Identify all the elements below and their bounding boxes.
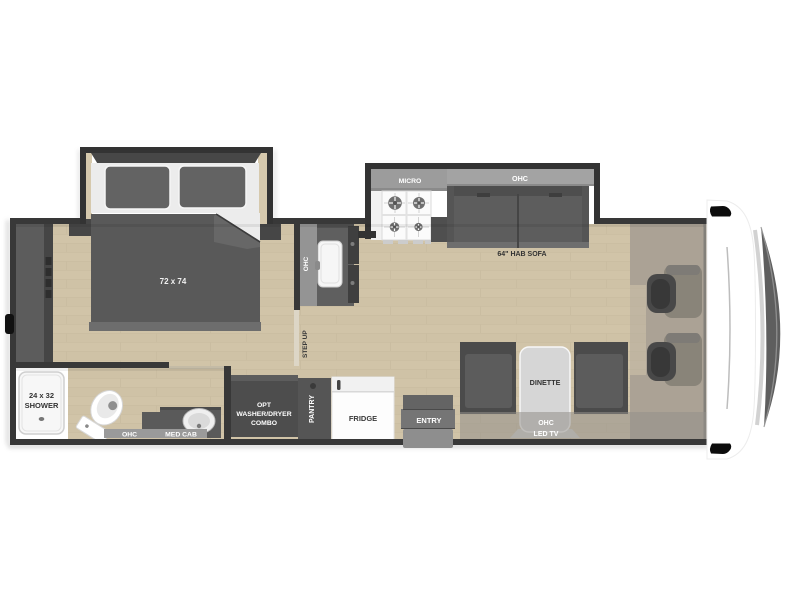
svg-text:MED CAB: MED CAB — [165, 432, 197, 439]
svg-text:ENTRY: ENTRY — [416, 416, 441, 425]
svg-text:MICRO: MICRO — [399, 178, 422, 185]
svg-text:STEP UP: STEP UP — [302, 330, 309, 358]
svg-text:OHC: OHC — [122, 432, 137, 439]
svg-text:DINETTE: DINETTE — [530, 378, 561, 387]
svg-text:24 x 32: 24 x 32 — [29, 391, 54, 400]
svg-text:SHOWER: SHOWER — [25, 401, 59, 410]
svg-text:WASHER/DRYER: WASHER/DRYER — [236, 411, 291, 418]
svg-text:LED TV: LED TV — [534, 431, 559, 438]
svg-text:64" HAB SOFA: 64" HAB SOFA — [497, 251, 546, 258]
svg-text:72 x 74: 72 x 74 — [160, 277, 187, 286]
svg-text:COMBO: COMBO — [251, 420, 277, 427]
svg-text:FRIDGE: FRIDGE — [349, 414, 377, 423]
svg-text:OHC: OHC — [538, 420, 554, 427]
svg-text:OHC: OHC — [512, 174, 528, 183]
svg-text:OHC: OHC — [303, 256, 310, 271]
svg-text:PANTRY: PANTRY — [309, 395, 316, 423]
svg-text:OPT: OPT — [257, 402, 272, 409]
